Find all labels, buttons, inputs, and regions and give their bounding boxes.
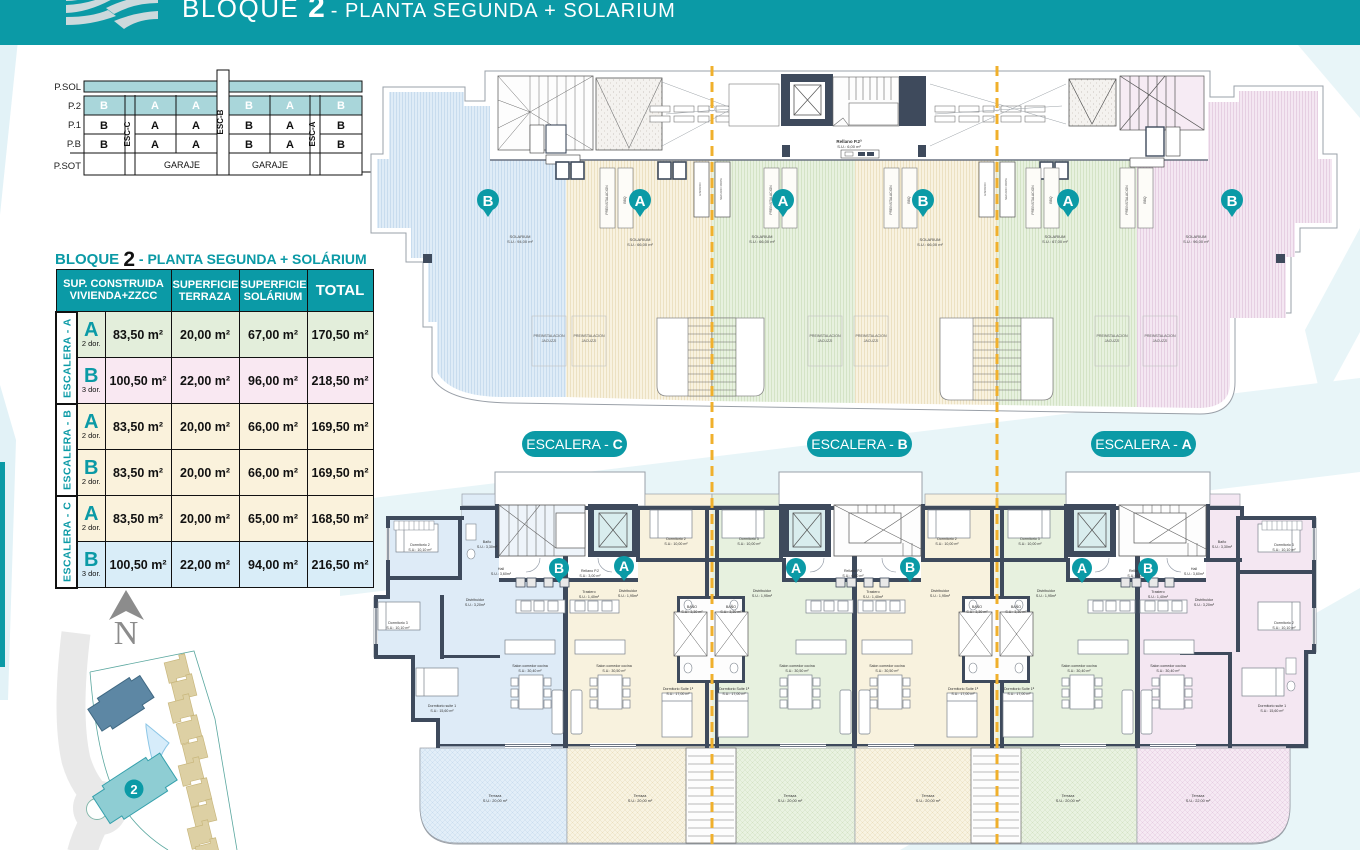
svg-text:SECADO ROPA: SECADO ROPA (1004, 178, 1008, 200)
svg-text:BBQ: BBQ (907, 196, 911, 204)
svg-text:S.U.: 17,00 m²: S.U.: 17,00 m² (666, 692, 690, 696)
svg-text:PREINSTALACION: PREINSTALACION (1144, 334, 1175, 338)
svg-text:S.U.: 3,20m²: S.U.: 3,20m² (1194, 603, 1215, 607)
svg-text:ESPACIO: ESPACIO (983, 182, 987, 196)
svg-text:JACUZZI: JACUZZI (818, 339, 833, 343)
svg-text:S.U.: 15,60 m²: S.U.: 15,60 m² (430, 709, 454, 713)
svg-text:PREINSTALACION: PREINSTALACION (855, 334, 886, 338)
svg-text:BBQ: BBQ (1049, 196, 1053, 204)
svg-text:S.U.: 1,40m²: S.U.: 1,40m² (863, 595, 884, 599)
svg-text:S.U.: 1,40m²: S.U.: 1,40m² (1148, 595, 1169, 599)
svg-text:Distribuidor: Distribuidor (619, 589, 638, 593)
svg-text:S.U.: 1,40m²: S.U.: 1,40m² (579, 595, 600, 599)
svg-text:Terraza: Terraza (634, 794, 648, 798)
svg-text:Baño: Baño (483, 540, 491, 544)
svg-text:S.U.: 30,40 m²: S.U.: 30,40 m² (518, 669, 542, 673)
svg-text:Dormitorio Suite 1ª: Dormitorio Suite 1ª (948, 687, 979, 691)
svg-text:A: A (778, 193, 789, 210)
svg-text:A: A (619, 558, 629, 574)
svg-text:Trastero: Trastero (866, 590, 879, 594)
svg-text:Salon comedor cocina: Salon comedor cocina (512, 664, 548, 668)
svg-text:PREINSTALACION: PREINSTALACION (533, 334, 564, 338)
svg-text:S.U.: 6,00 m²: S.U.: 6,00 m² (837, 144, 861, 149)
svg-text:S.U.: 6,00 m²: S.U.: 6,00 m² (842, 574, 864, 578)
svg-text:S.U.: 66,00 m²: S.U.: 66,00 m² (917, 242, 943, 247)
svg-text:JACUZZI: JACUZZI (1105, 339, 1120, 343)
svg-text:S.U.: 30,50 m²: S.U.: 30,50 m² (602, 669, 626, 673)
svg-text:B: B (554, 560, 564, 576)
svg-text:Terraza: Terraza (1062, 794, 1076, 798)
svg-text:S.U.: 66,00 m²: S.U.: 66,00 m² (749, 239, 775, 244)
svg-text:S.U.: 17,00 m²: S.U.: 17,00 m² (951, 692, 975, 696)
svg-text:JACUZZI: JACUZZI (542, 339, 557, 343)
svg-text:S.U.: 30,50 m²: S.U.: 30,50 m² (875, 669, 899, 673)
svg-text:Dormitorio Suite 1ª: Dormitorio Suite 1ª (719, 687, 750, 691)
svg-text:S.U.: 15,60 m²: S.U.: 15,60 m² (1260, 709, 1284, 713)
svg-text:BAÑO: BAÑO (726, 604, 736, 609)
svg-text:S.U.: 3,60m²: S.U.: 3,60m² (491, 572, 512, 576)
svg-text:Hall: Hall (1191, 567, 1197, 571)
svg-text:S.U.: 30,40 m²: S.U.: 30,40 m² (1067, 669, 1091, 673)
svg-text:S.U.: 3,30 m²: S.U.: 3,30 m² (1005, 610, 1027, 614)
svg-text:Terraza: Terraza (489, 794, 503, 798)
svg-text:S.U.: 1,95m²: S.U.: 1,95m² (752, 594, 773, 598)
svg-text:S.U.: 10,00 m²: S.U.: 10,00 m² (1018, 542, 1042, 546)
svg-text:S.U.: 20,00 m²: S.U.: 20,00 m² (628, 799, 653, 803)
svg-text:S.U.: 30,40 m²: S.U.: 30,40 m² (1156, 669, 1180, 673)
svg-text:B: B (1227, 193, 1238, 210)
svg-text:S.U.: 3,60m²: S.U.: 3,60m² (1184, 572, 1205, 576)
svg-text:BAÑO: BAÑO (1011, 604, 1021, 609)
svg-text:PREINSTALACION: PREINSTALACION (809, 334, 840, 338)
svg-text:Salon comedor cocina: Salon comedor cocina (1061, 664, 1097, 668)
svg-text:Dormitorio 2: Dormitorio 2 (666, 537, 686, 541)
svg-text:Terraza: Terraza (1192, 794, 1206, 798)
svg-text:Rellano P.2: Rellano P.2 (581, 569, 599, 573)
svg-text:S.U.: 20,00 m²: S.U.: 20,00 m² (1056, 799, 1081, 803)
svg-text:B: B (1143, 560, 1153, 576)
svg-text:S.U.: 3,20m²: S.U.: 3,20m² (465, 603, 486, 607)
svg-text:Hall: Hall (498, 567, 504, 571)
svg-text:BAÑO: BAÑO (972, 604, 982, 609)
svg-text:S.U.: 3,30 m²: S.U.: 3,30 m² (681, 610, 703, 614)
svg-text:B: B (483, 193, 494, 210)
svg-text:Dormitorio 2: Dormitorio 2 (1274, 621, 1294, 625)
svg-text:PREINSTALACION: PREINSTALACION (573, 334, 604, 338)
svg-text:A: A (635, 193, 646, 210)
svg-text:S.U.: 10,00 m²: S.U.: 10,00 m² (664, 542, 688, 546)
svg-text:S.U.: 66,00 m²: S.U.: 66,00 m² (627, 242, 653, 247)
svg-text:B: B (918, 193, 929, 210)
svg-text:Terraza: Terraza (784, 794, 798, 798)
svg-text:Salon comedor cocina: Salon comedor cocina (869, 664, 905, 668)
svg-text:S.U.: 67,00 m²: S.U.: 67,00 m² (1042, 239, 1068, 244)
svg-text:Dormitorio 3: Dormitorio 3 (1020, 537, 1040, 541)
svg-text:Rellano P.2: Rellano P.2 (844, 569, 862, 573)
svg-text:Dormitorio 3: Dormitorio 3 (739, 537, 759, 541)
svg-text:S.U.: 3,30 m²: S.U.: 3,30 m² (720, 610, 742, 614)
svg-text:Dormitorio 3: Dormitorio 3 (388, 621, 408, 625)
svg-text:Dormitorio Suite 1ª: Dormitorio Suite 1ª (1004, 687, 1035, 691)
svg-text:Distribuidor: Distribuidor (466, 598, 485, 602)
svg-text:S.U.: 10,10 m²: S.U.: 10,10 m² (1272, 626, 1296, 630)
svg-text:S.U.: 10,00 m²: S.U.: 10,00 m² (935, 542, 959, 546)
svg-text:B: B (905, 559, 915, 575)
svg-text:Trastero: Trastero (1151, 590, 1164, 594)
svg-text:S.U.: 10,10 m²: S.U.: 10,10 m² (386, 626, 410, 630)
svg-text:S.U.: 10,10 m²: S.U.: 10,10 m² (1272, 548, 1296, 552)
svg-text:Baño: Baño (1218, 540, 1226, 544)
svg-text:PREINSTALACION: PREINSTALACION (605, 185, 609, 215)
svg-text:S.U.: 1,95m²: S.U.: 1,95m² (930, 594, 951, 598)
svg-text:S.U.: 30,50 m²: S.U.: 30,50 m² (785, 669, 809, 673)
svg-text:Terraza: Terraza (922, 794, 936, 798)
svg-text:S.U.: 22,00 m²: S.U.: 22,00 m² (1186, 799, 1211, 803)
svg-text:S.U.: 20,00 m²: S.U.: 20,00 m² (483, 799, 508, 803)
svg-text:A: A (1063, 193, 1074, 210)
svg-text:Distribuidor: Distribuidor (931, 589, 950, 593)
svg-text:Salon comedor cocina: Salon comedor cocina (779, 664, 815, 668)
svg-text:A: A (791, 560, 801, 576)
svg-text:S.U.: 3,30 m²: S.U.: 3,30 m² (966, 610, 988, 614)
svg-text:S.U.: 1,95m²: S.U.: 1,95m² (618, 594, 639, 598)
svg-text:S.U.: 3,00 m²: S.U.: 3,00 m² (579, 574, 601, 578)
svg-text:S.U.: 20,00 m²: S.U.: 20,00 m² (778, 799, 803, 803)
svg-text:BBQ: BBQ (1143, 196, 1147, 204)
svg-text:Distribuidor: Distribuidor (1037, 589, 1056, 593)
svg-text:BBQ: BBQ (623, 196, 627, 204)
svg-text:S.U.: 94,00 m²: S.U.: 94,00 m² (507, 239, 533, 244)
svg-text:S.U.: 20,00 m²: S.U.: 20,00 m² (916, 799, 941, 803)
svg-text:Dormitorio 2: Dormitorio 2 (937, 537, 957, 541)
svg-text:A: A (1077, 560, 1087, 576)
svg-text:S.U.: 96,00 m²: S.U.: 96,00 m² (1183, 239, 1209, 244)
svg-text:S.U.: 10,10 m²: S.U.: 10,10 m² (408, 548, 432, 552)
svg-text:S.U.: 17,00 m²: S.U.: 17,00 m² (722, 692, 746, 696)
svg-text:Dormitorio suite 1: Dormitorio suite 1 (428, 704, 456, 708)
svg-text:JACUZZI: JACUZZI (582, 339, 597, 343)
svg-text:S.U.: 10,00 m²: S.U.: 10,00 m² (737, 542, 761, 546)
svg-text:ESPACIO: ESPACIO (698, 182, 702, 196)
svg-text:PREINSTALACION: PREINSTALACION (1096, 334, 1127, 338)
svg-text:S.U.: 1,95m²: S.U.: 1,95m² (1036, 594, 1057, 598)
svg-text:Distribuidor: Distribuidor (753, 589, 772, 593)
svg-text:S.U.: 3,30m²: S.U.: 3,30m² (477, 545, 498, 549)
svg-text:Dormitorio suite 1: Dormitorio suite 1 (1258, 704, 1286, 708)
svg-text:Dormitorio Suite 1ª: Dormitorio Suite 1ª (663, 687, 694, 691)
svg-text:Salon comedor cocina: Salon comedor cocina (1150, 664, 1186, 668)
svg-text:JACUZZI: JACUZZI (864, 339, 879, 343)
svg-text:PREINSTALACION: PREINSTALACION (1031, 185, 1035, 215)
svg-text:Salon comedor cocina: Salon comedor cocina (596, 664, 632, 668)
svg-text:S.U.: 3,30m²: S.U.: 3,30m² (1212, 545, 1233, 549)
svg-text:Dormitorio 3: Dormitorio 3 (1274, 543, 1294, 547)
svg-text:BAÑO: BAÑO (687, 604, 697, 609)
svg-text:Dormitorio 2: Dormitorio 2 (410, 543, 430, 547)
svg-text:Trastero: Trastero (582, 590, 595, 594)
svg-text:Distribuidor: Distribuidor (1195, 598, 1214, 602)
svg-text:SECADO ROPA: SECADO ROPA (719, 178, 723, 200)
svg-text:S.U.: 17,00 m²: S.U.: 17,00 m² (1007, 692, 1031, 696)
svg-text:PREINSTALACION: PREINSTALACION (1125, 185, 1129, 215)
svg-text:PREINSTALACION: PREINSTALACION (889, 185, 893, 215)
svg-text:JACUZZI: JACUZZI (1153, 339, 1168, 343)
